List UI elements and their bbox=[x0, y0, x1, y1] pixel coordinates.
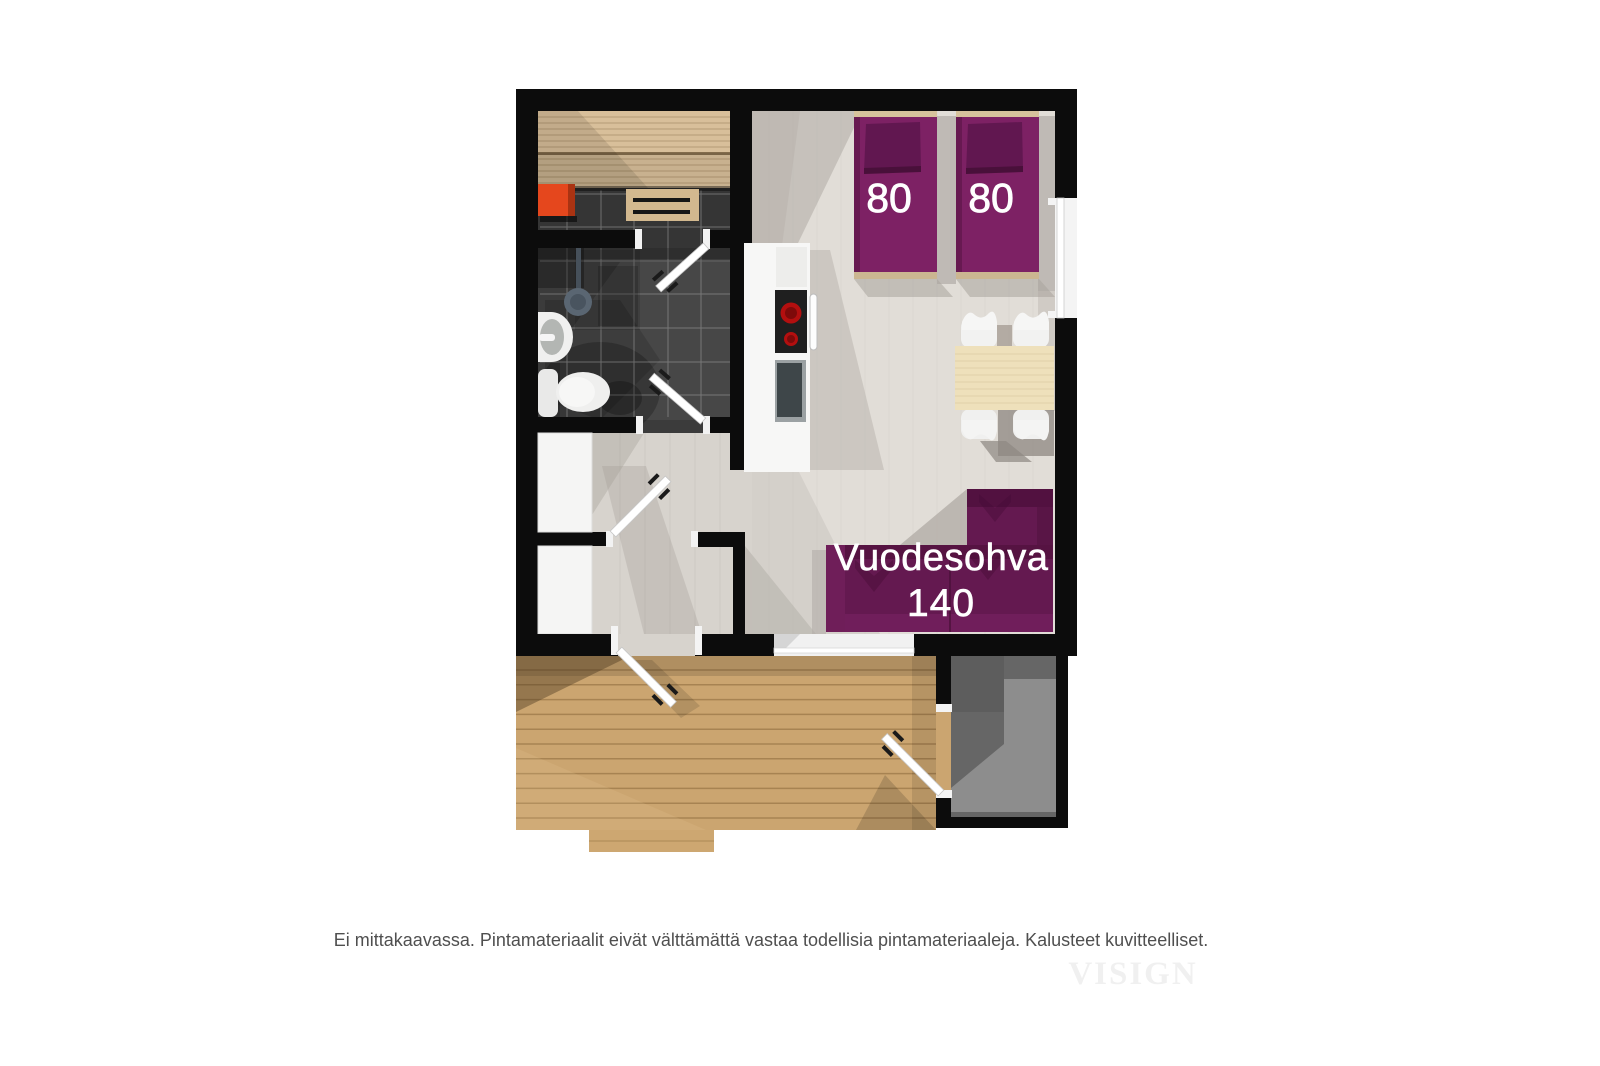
svg-text:80: 80 bbox=[866, 175, 912, 221]
svg-text:Vuodesohva: Vuodesohva bbox=[834, 537, 1049, 579]
svg-text:80: 80 bbox=[968, 175, 1014, 221]
svg-text:Ei mittakaavassa. Pintamateria: Ei mittakaavassa. Pintamateriaalit eivät… bbox=[334, 930, 1208, 950]
svg-text:VISIGN: VISIGN bbox=[1068, 956, 1197, 992]
svg-text:140: 140 bbox=[907, 582, 975, 625]
